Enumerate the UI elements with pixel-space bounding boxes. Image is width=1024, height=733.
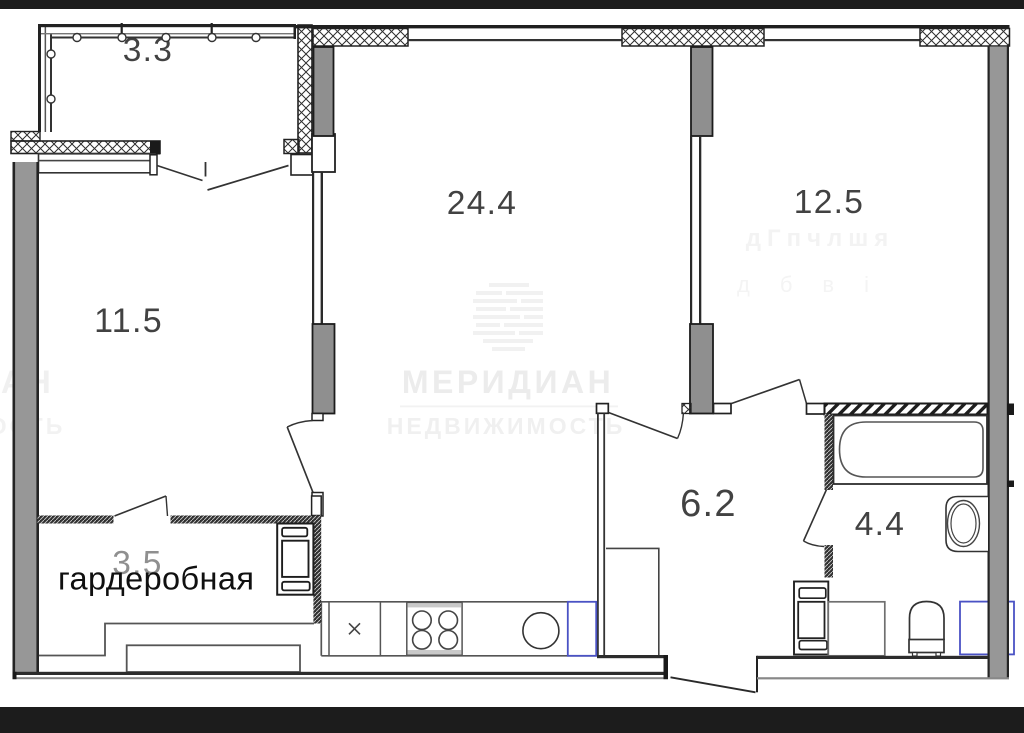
svg-text:4.4: 4.4 <box>855 506 905 543</box>
svg-text:НЕДВИЖИМОСТЬ: НЕДВИЖИМОСТЬ <box>387 413 625 439</box>
svg-text:6.2: 6.2 <box>680 483 737 525</box>
svg-text:24.4: 24.4 <box>447 185 517 222</box>
svg-text:гардеробная: гардеробная <box>58 561 254 597</box>
svg-text:дбві: дбві <box>737 272 899 297</box>
svg-text:12.5: 12.5 <box>794 184 864 221</box>
svg-text:МЕРИДИАН: МЕРИДИАН <box>402 364 614 400</box>
svg-text:11.5: 11.5 <box>94 302 163 340</box>
svg-text:дГпчлшя: дГпчлшя <box>746 225 895 252</box>
